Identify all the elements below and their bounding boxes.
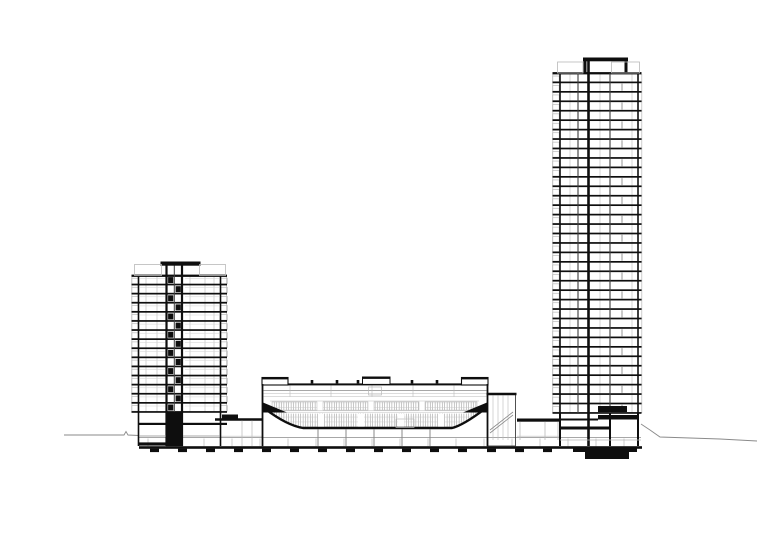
left-tower [132,262,228,447]
drawing-sheet [0,0,780,546]
ground-line-left [64,432,139,436]
section-drawing [0,0,780,546]
ground-line-right [641,424,757,441]
right-tower [553,58,642,460]
arena-section [262,377,489,446]
